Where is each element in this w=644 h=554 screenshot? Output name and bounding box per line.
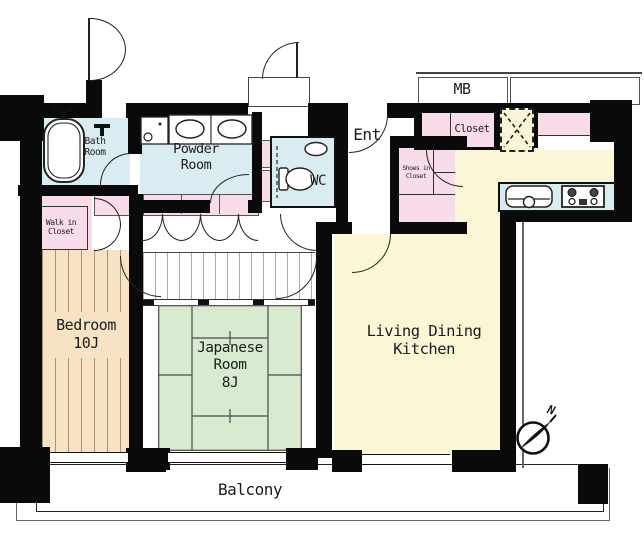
kitchen-side-counter [537,110,592,136]
window [362,454,450,465]
wall-segment [316,230,332,458]
wall-segment [414,112,422,150]
door-leaf [88,18,90,80]
entrance-label: Ent [344,125,390,145]
kitchen-counter [498,182,616,212]
pipe-space-x-icon [502,110,532,150]
floor-plan: N Bath Room Powder Room WC Ent Shoes in … [0,0,644,554]
balcony-floor [36,464,604,512]
bifold-door-arc [94,224,121,251]
bifold-door-arc [181,214,201,241]
wall-segment [452,450,516,472]
japanese-room-label: Japanese Room 8J [162,332,298,400]
wall-segment [316,222,352,234]
bifold-door-arc [143,214,163,241]
bath-room-label: Bath Room [72,132,118,162]
door-arc [280,214,317,251]
door-arc [262,42,299,79]
wall-segment [614,140,632,214]
closet-label: Closet [450,116,494,142]
door-leaf [296,42,298,78]
bifold-door-arc [200,214,220,241]
bifold-door-arc [219,214,239,241]
sink-icon [506,186,552,208]
wc-label: WC [304,172,332,190]
exterior-line [416,72,642,74]
shoes-closet-divider [398,194,455,195]
wall-segment [390,222,467,234]
walk-in-closet-label: Walk in Closet [38,208,84,246]
powder-room-label: Powder Room [158,140,234,176]
wall-segment [578,464,608,504]
ldk-label: Living Dining Kitchen [338,316,510,364]
wall-segment [138,200,210,213]
balcony-label: Balcony [196,477,304,503]
bedroom-label: Bedroom 10J [44,312,128,358]
window [168,452,286,463]
meter-box-label: MB [418,77,506,103]
entrance-porch [248,77,310,107]
shower-icon [52,106,74,119]
wall-segment [332,450,362,472]
wall-segment [286,448,318,470]
wall-segment [126,448,166,472]
ldk-floor [334,112,614,458]
wall-segment [20,95,42,477]
window [50,452,128,463]
wall-segment [18,185,138,196]
pipe-space [500,108,534,152]
stove-icon [562,186,604,207]
wall-segment [129,194,143,458]
bifold-door-arc [238,214,258,241]
door-arc [90,49,126,81]
door-arc [90,18,126,50]
wall-segment [86,80,102,118]
shoes-closet-label: Shoes in Closet [398,154,434,192]
wall-segment [0,447,50,503]
bifold-door-arc [162,214,182,241]
wall-segment [590,100,632,142]
